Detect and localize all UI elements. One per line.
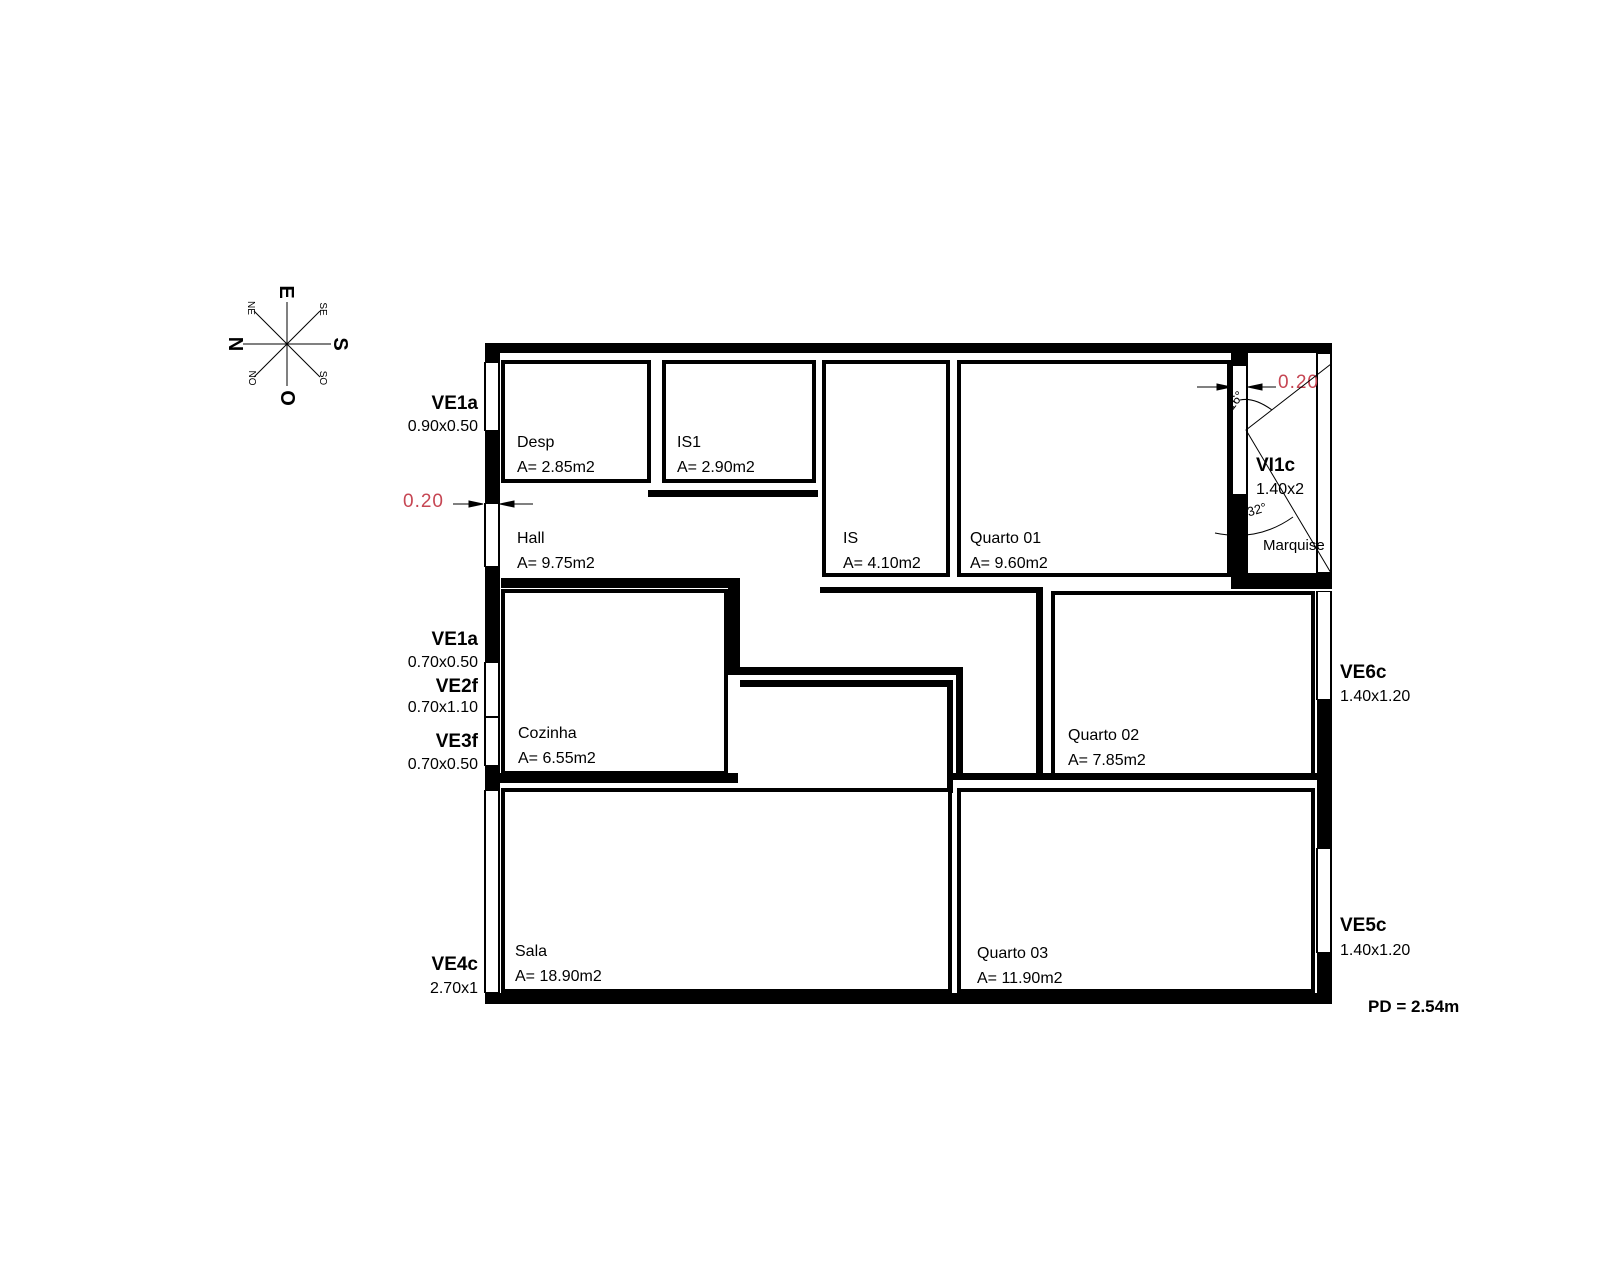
room-name: Hall xyxy=(517,526,595,551)
window-hall-side xyxy=(484,503,500,567)
room-name: Sala xyxy=(515,939,602,964)
window-vi1c xyxy=(1231,365,1248,495)
wall-corridor-north-face xyxy=(820,587,1043,593)
room-label-marquise: Marquise xyxy=(1263,537,1325,554)
wall-right-segment xyxy=(1317,953,1332,994)
wall-quarto01-marquise-top xyxy=(1231,353,1248,365)
room-label-quarto01: Quarto 01 A= 9.60m2 xyxy=(970,526,1048,576)
window-ve1a-ve2f-ve3f xyxy=(484,662,500,766)
room-name: Quarto 02 xyxy=(1068,723,1146,748)
window-ve1a-top xyxy=(484,362,500,431)
wall-left-segment xyxy=(485,431,500,503)
compass-west: O xyxy=(276,387,298,409)
window-ve6c xyxy=(1316,591,1332,700)
compass-northwest: NO xyxy=(241,368,261,388)
room-label-is: IS A= 4.10m2 xyxy=(843,526,921,576)
room-area: A= 2.90m2 xyxy=(677,455,755,480)
dimension-text-left: 0.20 xyxy=(403,491,444,513)
compass-south: S xyxy=(329,333,351,355)
compass-southeast: SE xyxy=(312,299,332,319)
wall-bottom xyxy=(485,993,1332,1004)
room-name: Quarto 03 xyxy=(977,941,1063,966)
room-area: A= 6.55m2 xyxy=(518,746,596,771)
room-label-quarto03: Quarto 03 A= 11.90m2 xyxy=(977,941,1063,991)
wall-hall-south xyxy=(501,578,738,588)
label-ve3f-size: 0.70x0.50 xyxy=(408,756,478,774)
label-ve4c-code: VE4c xyxy=(432,954,478,976)
label-ve1a-mid-code: VE1a xyxy=(432,629,478,651)
wall-is1-south-face xyxy=(648,490,818,497)
compass-north: N xyxy=(224,333,246,355)
window-ve5c xyxy=(1316,848,1332,953)
room-name: Desp xyxy=(517,430,595,455)
linework-overlay xyxy=(0,0,1600,1280)
label-ve6c-code: VE6c xyxy=(1340,662,1386,684)
room-label-hall: Hall A= 9.75m2 xyxy=(517,526,595,576)
label-ve5c-size: 1.40x1.20 xyxy=(1340,942,1410,960)
room-area: A= 9.60m2 xyxy=(970,551,1048,576)
label-ve1a-top-size: 0.90x0.50 xyxy=(408,418,478,436)
window-ve4c xyxy=(484,790,500,993)
window-divider xyxy=(484,716,500,718)
wall-top xyxy=(485,343,1332,353)
label-ve3f-code: VE3f xyxy=(436,731,478,753)
label-ve6c-size: 1.40x1.20 xyxy=(1340,688,1410,706)
compass-southwest: SO xyxy=(312,368,332,388)
label-ve1a-mid-size: 0.70x0.50 xyxy=(408,654,478,672)
compass-east: E xyxy=(275,281,297,303)
wall-corridor-b xyxy=(740,680,953,687)
room-area: A= 2.85m2 xyxy=(517,455,595,480)
room-area: A= 9.75m2 xyxy=(517,551,595,576)
room-area: A= 18.90m2 xyxy=(515,964,602,989)
room-label-is1: IS1 A= 2.90m2 xyxy=(677,430,755,480)
wall-left-segment xyxy=(485,343,500,362)
room-name: IS xyxy=(843,526,921,551)
label-ve2f-size: 0.70x1.10 xyxy=(408,699,478,717)
room-label-sala: Sala A= 18.90m2 xyxy=(515,939,602,989)
room-name: IS1 xyxy=(677,430,755,455)
dimension-text-right: 0.20 xyxy=(1278,372,1319,394)
label-vi1c-size: 1.40x2 xyxy=(1256,481,1304,499)
room-label-cozinha: Cozinha A= 6.55m2 xyxy=(518,721,596,771)
label-vi1c-code: VI1c xyxy=(1256,455,1295,477)
room-name: Cozinha xyxy=(518,721,596,746)
label-ve1a-top-code: VE1a xyxy=(432,393,478,415)
room-area: A= 11.90m2 xyxy=(977,966,1063,991)
wall-marquise-bottom xyxy=(1231,573,1332,589)
room-area: A= 4.10m2 xyxy=(843,551,921,576)
room-name: Quarto 01 xyxy=(970,526,1048,551)
label-ve4c-size: 2.70x1 xyxy=(430,980,478,998)
wall-corridor-a xyxy=(738,667,963,675)
label-ve2f-code: VE2f xyxy=(436,676,478,698)
room-area: A= 7.85m2 xyxy=(1068,748,1146,773)
wall-cozinha-right xyxy=(728,578,740,675)
angle-label-lower: 32° xyxy=(1245,500,1268,520)
room-label-quarto02: Quarto 02 A= 7.85m2 xyxy=(1068,723,1146,773)
wall-corridor-vert-a xyxy=(956,667,963,777)
label-ve5c-code: VE5c xyxy=(1340,915,1386,937)
compass-northeast: NE xyxy=(240,298,260,318)
ceiling-height-note: PD = 2.54m xyxy=(1368,997,1459,1017)
wall-left-segment xyxy=(485,567,500,662)
room-label-desp: Desp A= 2.85m2 xyxy=(517,430,595,480)
wall-closet-right xyxy=(1036,589,1043,780)
floor-plan: Desp A= 2.85m2 IS1 A= 2.90m2 Hall A= 9.7… xyxy=(0,0,1600,1280)
